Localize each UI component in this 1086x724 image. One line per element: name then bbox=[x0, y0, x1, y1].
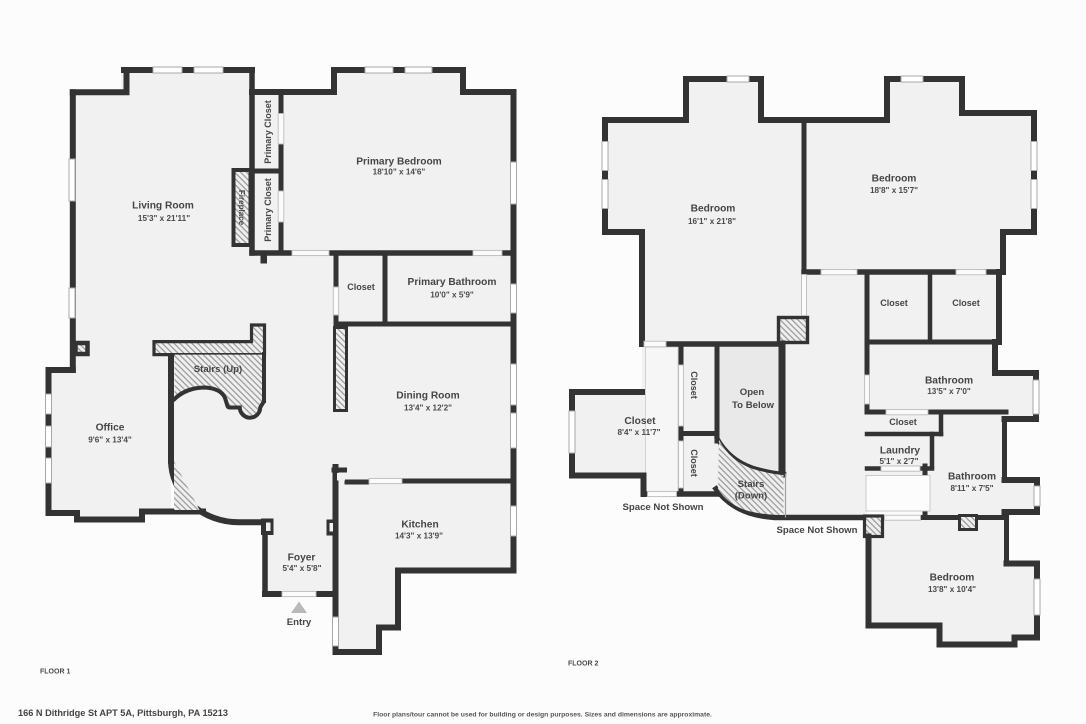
svg-text:Primary Closet: Primary Closet bbox=[263, 100, 273, 164]
svg-text:18'8" x 15'7": 18'8" x 15'7" bbox=[870, 186, 918, 195]
svg-text:Bathroom: Bathroom bbox=[948, 471, 996, 482]
svg-text:Foyer: Foyer bbox=[288, 552, 316, 563]
svg-text:Stairs: Stairs bbox=[738, 479, 765, 490]
svg-text:Closet: Closet bbox=[624, 416, 656, 427]
svg-text:13'5" x 7'0": 13'5" x 7'0" bbox=[927, 387, 971, 396]
svg-text:Bedroom: Bedroom bbox=[691, 203, 736, 214]
svg-text:Closet: Closet bbox=[689, 449, 699, 477]
svg-text:Entry: Entry bbox=[287, 617, 312, 628]
svg-text:Open: Open bbox=[740, 387, 765, 398]
svg-text:5'4" x 5'8": 5'4" x 5'8" bbox=[283, 564, 322, 573]
svg-text:Bedroom: Bedroom bbox=[872, 173, 917, 184]
svg-text:15'3" x 21'11": 15'3" x 21'11" bbox=[138, 214, 190, 223]
svg-text:FLOOR 1: FLOOR 1 bbox=[40, 669, 70, 676]
svg-text:166 N Dithridge St APT 5A, Pit: 166 N Dithridge St APT 5A, Pittsburgh, P… bbox=[18, 708, 228, 718]
svg-text:Closet: Closet bbox=[347, 282, 375, 292]
svg-text:16'1" x 21'8": 16'1" x 21'8" bbox=[688, 217, 736, 226]
svg-text:Bedroom: Bedroom bbox=[930, 572, 975, 583]
svg-text:Closet: Closet bbox=[889, 417, 917, 427]
svg-text:5'1" x 2'7": 5'1" x 2'7" bbox=[880, 457, 919, 466]
svg-text:13'8" x 10'4": 13'8" x 10'4" bbox=[928, 585, 976, 594]
svg-text:Living Room: Living Room bbox=[132, 201, 194, 212]
svg-text:Fireplace: Fireplace bbox=[237, 190, 246, 226]
svg-text:FLOOR 2: FLOOR 2 bbox=[568, 661, 598, 668]
svg-text:To Below: To Below bbox=[732, 400, 774, 411]
svg-text:Primary Bedroom: Primary Bedroom bbox=[356, 156, 442, 167]
svg-text:Kitchen: Kitchen bbox=[401, 519, 438, 530]
svg-text:14'3" x 13'9": 14'3" x 13'9" bbox=[395, 532, 443, 541]
svg-text:8'4" x 11'7": 8'4" x 11'7" bbox=[617, 428, 660, 437]
svg-text:Dining Room: Dining Room bbox=[396, 390, 459, 401]
svg-text:8'11" x 7'5": 8'11" x 7'5" bbox=[950, 484, 993, 493]
svg-text:Primary Bathroom: Primary Bathroom bbox=[408, 277, 497, 288]
svg-text:Bathroom: Bathroom bbox=[925, 375, 973, 386]
svg-text:Closet: Closet bbox=[689, 371, 699, 399]
svg-text:18'10" x 14'6": 18'10" x 14'6" bbox=[373, 168, 426, 177]
svg-text:Stairs (Up): Stairs (Up) bbox=[194, 364, 243, 375]
svg-text:Laundry: Laundry bbox=[880, 445, 921, 456]
svg-text:Space Not Shown: Space Not Shown bbox=[622, 502, 703, 513]
svg-text:Closet: Closet bbox=[952, 298, 980, 308]
svg-text:Closet: Closet bbox=[880, 298, 908, 308]
svg-text:10'0" x 5'9": 10'0" x 5'9" bbox=[430, 291, 474, 300]
svg-text:(Down): (Down) bbox=[735, 491, 768, 502]
svg-text:Floor plans/tour cannot be use: Floor plans/tour cannot be used for buil… bbox=[373, 712, 712, 719]
svg-text:9'6" x 13'4": 9'6" x 13'4" bbox=[88, 436, 132, 445]
svg-text:Primary Closet: Primary Closet bbox=[263, 178, 273, 242]
svg-text:Space Not Shown: Space Not Shown bbox=[776, 525, 857, 536]
svg-text:Office: Office bbox=[96, 422, 125, 433]
svg-text:13'4" x 12'2": 13'4" x 12'2" bbox=[404, 404, 452, 413]
